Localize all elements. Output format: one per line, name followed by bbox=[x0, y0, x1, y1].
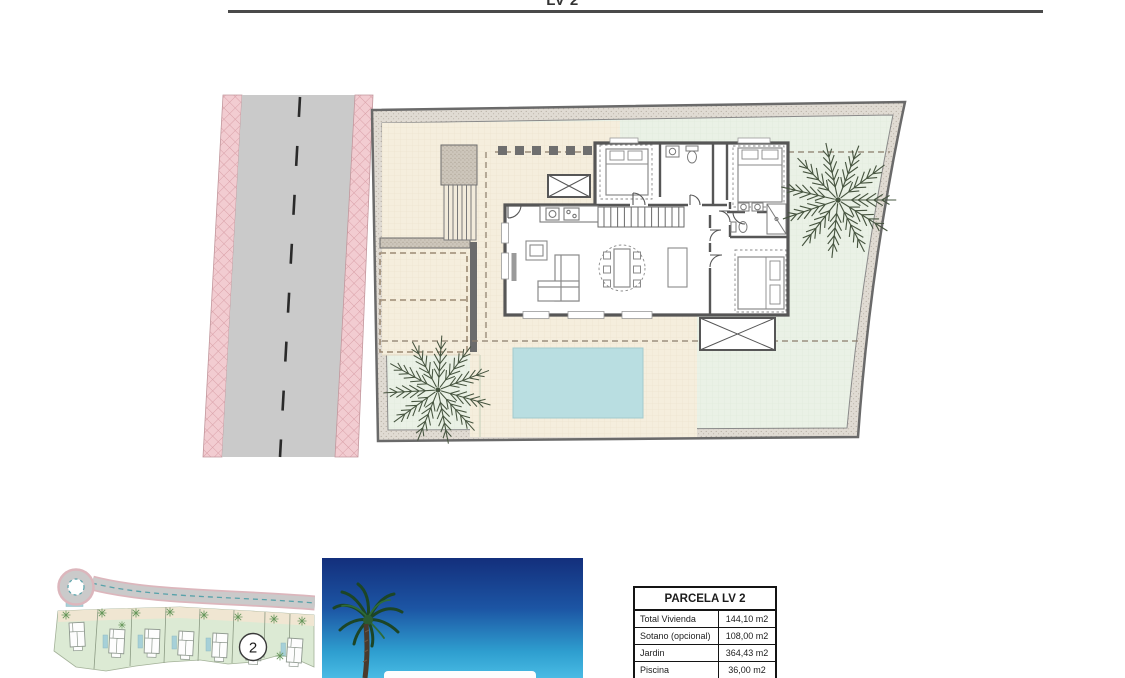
sink-icon bbox=[546, 208, 559, 220]
table-row: Total Vivienda 144,10 m2 bbox=[635, 611, 775, 627]
skylight-icon bbox=[700, 318, 775, 350]
stairs-icon bbox=[598, 207, 684, 227]
row-label: Sotano (opcional) bbox=[635, 628, 719, 644]
page-title: LV 2 bbox=[0, 0, 1125, 9]
row-label: Total Vivienda bbox=[635, 611, 719, 627]
row-label: Jardin bbox=[635, 645, 719, 661]
stove-icon bbox=[564, 208, 579, 220]
bedroom-3 bbox=[735, 250, 786, 312]
stairs-icon bbox=[444, 185, 476, 240]
swimming-pool bbox=[513, 348, 643, 418]
sink-icon bbox=[666, 146, 679, 157]
toilet-icon bbox=[688, 151, 697, 163]
road-asphalt bbox=[222, 95, 355, 457]
bed-icon bbox=[738, 148, 782, 202]
plot-marker: 2 bbox=[240, 634, 267, 661]
white-villa-roofline bbox=[384, 671, 536, 678]
street bbox=[203, 95, 373, 457]
site-plan-drawing bbox=[190, 85, 935, 470]
title-divider bbox=[228, 10, 1043, 13]
table-row: Sotano (opcional) 108,00 m2 bbox=[635, 627, 775, 644]
row-value: 108,00 m2 bbox=[719, 628, 775, 644]
plot-marker-number: 2 bbox=[249, 640, 257, 657]
bedroom-1 bbox=[600, 145, 652, 199]
armchair-icon bbox=[526, 241, 547, 260]
entry-steps bbox=[441, 145, 477, 240]
development-overview-map: 2 bbox=[50, 563, 315, 678]
row-value: 144,10 m2 bbox=[719, 611, 775, 627]
table-title: PARCELA LV 2 bbox=[635, 588, 775, 611]
row-value: 364,43 m2 bbox=[719, 645, 775, 661]
roundabout bbox=[59, 570, 94, 605]
tv-icon bbox=[512, 253, 517, 281]
palm-tree-icon bbox=[322, 558, 583, 678]
row-value: 36,00 m2 bbox=[719, 662, 775, 678]
table-row: Piscina 36,00 m2 bbox=[635, 661, 775, 678]
kitchen bbox=[540, 206, 598, 222]
row-label: Piscina bbox=[635, 662, 719, 678]
bed-icon bbox=[738, 257, 784, 309]
skylight-icon bbox=[548, 175, 590, 197]
access-road bbox=[59, 570, 316, 605]
parcel-info-table: PARCELA LV 2 Total Vivienda 144,10 m2 So… bbox=[633, 586, 777, 678]
dining-table-icon bbox=[614, 249, 630, 287]
bedroom-2 bbox=[733, 146, 784, 207]
location-photo bbox=[322, 558, 583, 678]
table-row: Jardin 364,43 m2 bbox=[635, 644, 775, 661]
brochure-page: LV 2 bbox=[0, 0, 1125, 678]
sideboard-icon bbox=[668, 248, 687, 287]
courtyard-wall bbox=[470, 242, 477, 352]
